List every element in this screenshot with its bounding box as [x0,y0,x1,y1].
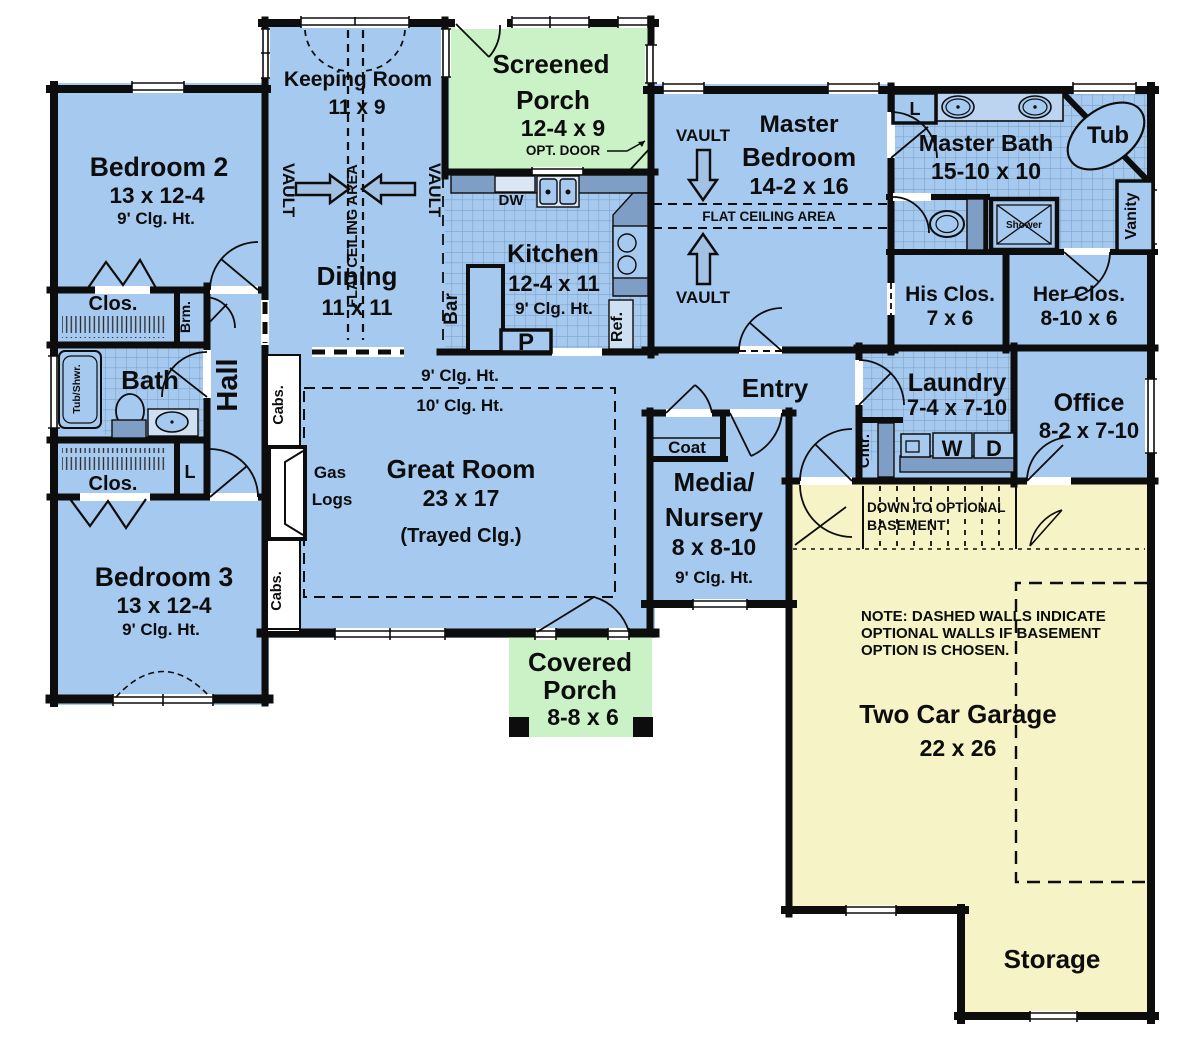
svg-text:Entry: Entry [742,373,809,403]
svg-text:Master Bath: Master Bath [919,130,1054,156]
svg-text:DW: DW [499,192,525,209]
svg-text:L: L [910,99,921,119]
svg-text:Brm.: Brm. [177,301,193,333]
svg-text:Dining: Dining [317,261,398,291]
svg-text:Bedroom 3: Bedroom 3 [95,562,233,592]
svg-text:FLAT CEILING AREA: FLAT CEILING AREA [702,209,836,224]
svg-text:Coat: Coat [668,438,706,457]
svg-text:D: D [986,436,1002,461]
svg-text:Office: Office [1054,389,1125,417]
svg-text:Laundry: Laundry [908,369,1007,397]
svg-text:Gas: Gas [314,463,346,482]
svg-text:8-2 x 7-10: 8-2 x 7-10 [1039,418,1139,443]
svg-text:Tub/Shwr.: Tub/Shwr. [71,364,83,413]
svg-text:VAULT: VAULT [676,288,731,307]
svg-text:Clos.: Clos. [89,293,138,315]
svg-text:Cabs.: Cabs. [271,385,287,425]
svg-text:Bath: Bath [121,365,179,395]
svg-text:L: L [185,462,196,482]
svg-text:P: P [518,329,534,356]
svg-text:Ref.: Ref. [609,312,626,342]
svg-text:Two Car Garage: Two Car Garage [859,699,1056,729]
svg-text:9' Clg. Ht.: 9' Clg. Ht. [675,568,753,587]
svg-text:Screened: Screened [492,49,609,79]
svg-text:Bedroom: Bedroom [742,142,856,172]
svg-text:Master: Master [760,111,839,138]
svg-text:9' Clg. Ht.: 9' Clg. Ht. [515,299,593,318]
svg-text:His Clos.: His Clos. [905,283,995,306]
svg-text:7 x 6: 7 x 6 [927,307,974,330]
svg-text:Kitchen: Kitchen [507,240,599,268]
svg-text:Cntr.: Cntr. [856,434,873,468]
svg-text:9' Clg. Ht.: 9' Clg. Ht. [421,366,499,385]
svg-text:7-4 x 7-10: 7-4 x 7-10 [907,395,1007,420]
svg-text:8-10 x 6: 8-10 x 6 [1040,307,1117,330]
svg-text:11 x 11: 11 x 11 [322,295,393,320]
svg-text:W: W [942,436,963,461]
svg-text:Storage: Storage [1004,944,1101,974]
svg-text:13 x 12-4: 13 x 12-4 [109,183,205,208]
svg-text:OPTIONAL WALLS IF BASEMENT: OPTIONAL WALLS IF BASEMENT [861,625,1101,642]
svg-text:12-4 x 9: 12-4 x 9 [521,115,605,141]
svg-text:8-8 x 6: 8-8 x 6 [547,704,619,730]
svg-text:Cabs.: Cabs. [269,571,285,611]
svg-text:13 x 12-4: 13 x 12-4 [116,593,212,618]
svg-text:BASEMENT: BASEMENT [867,517,946,533]
svg-text:11 x 9: 11 x 9 [328,96,385,119]
svg-text:Vanity: Vanity [1123,192,1140,239]
svg-text:Tub: Tub [1087,122,1129,149]
svg-text:Bar: Bar [441,293,462,325]
svg-text:OPT. DOOR: OPT. DOOR [526,143,601,158]
svg-text:9' Clg. Ht.: 9' Clg. Ht. [122,620,200,639]
svg-text:Covered: Covered [528,647,632,677]
svg-text:DOWN TO OPTIONAL: DOWN TO OPTIONAL [867,500,1006,515]
svg-text:Media/: Media/ [674,467,755,497]
svg-text:9' Clg. Ht.: 9' Clg. Ht. [117,209,195,228]
svg-text:Hall: Hall [212,358,244,411]
svg-text:8 x 8-10: 8 x 8-10 [672,534,756,560]
svg-text:Nursery: Nursery [665,502,764,532]
svg-text:22 x 26: 22 x 26 [920,735,997,761]
svg-text:VAULT: VAULT [425,163,444,218]
svg-text:23 x 17: 23 x 17 [423,485,500,511]
svg-text:Bedroom 2: Bedroom 2 [90,152,228,182]
svg-text:12-4 x 11: 12-4 x 11 [508,271,600,296]
svg-text:VAULT: VAULT [676,126,731,145]
svg-text:Clos.: Clos. [89,473,138,495]
svg-text:Great Room: Great Room [387,454,536,484]
svg-text:Porch: Porch [516,85,590,115]
svg-text:NOTE: DASHED WALLS INDICATE: NOTE: DASHED WALLS INDICATE [861,608,1106,625]
svg-text:Logs: Logs [312,490,353,509]
svg-text:Porch: Porch [543,675,617,705]
svg-text:14-2 x 16: 14-2 x 16 [749,173,848,199]
svg-text:Keeping Room: Keeping Room [284,68,432,91]
svg-text:10' Clg. Ht.: 10' Clg. Ht. [416,396,503,415]
svg-text:Her Clos.: Her Clos. [1033,283,1125,306]
svg-text:Shower: Shower [1006,220,1042,231]
svg-text:VAULT: VAULT [279,163,298,218]
svg-text:15-10 x 10: 15-10 x 10 [931,158,1041,184]
svg-text:(Trayed Clg.): (Trayed Clg.) [400,525,521,547]
svg-text:OPTION IS CHOSEN.: OPTION IS CHOSEN. [861,642,1009,659]
